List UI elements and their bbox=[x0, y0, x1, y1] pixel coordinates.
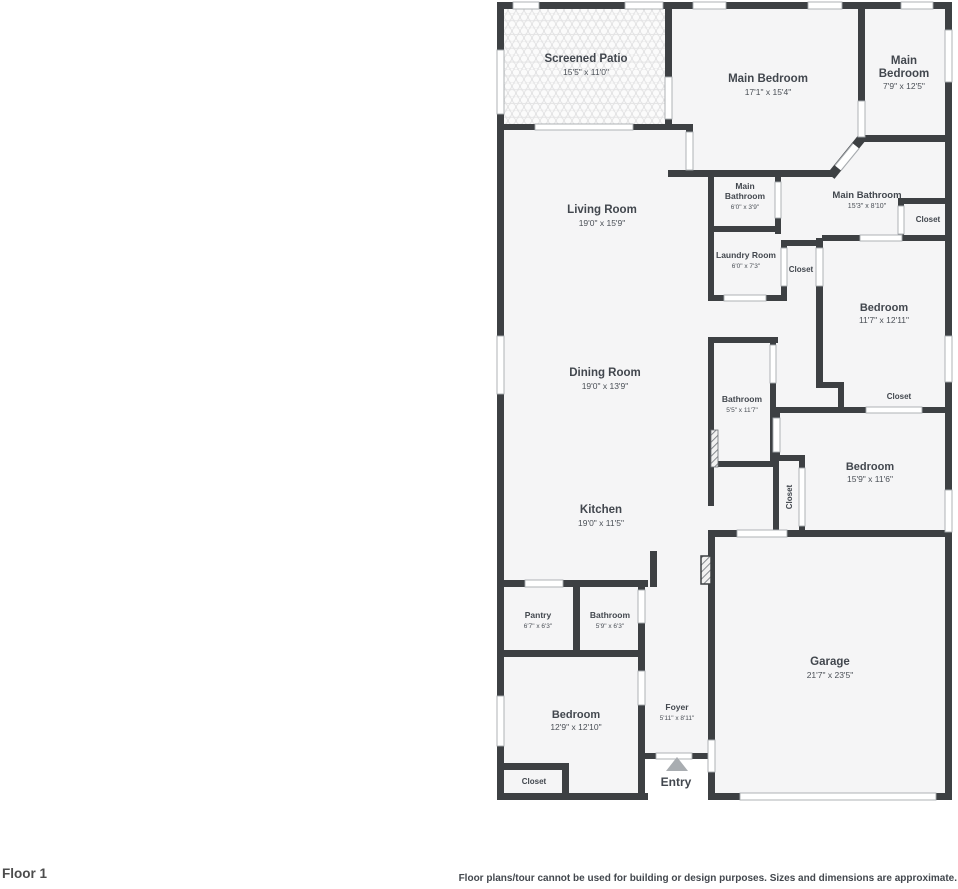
door bbox=[781, 248, 787, 286]
svg-text:Main: Main bbox=[735, 181, 754, 191]
svg-text:Bedroom: Bedroom bbox=[879, 68, 929, 80]
door bbox=[638, 671, 645, 705]
svg-text:Foyer: Foyer bbox=[665, 702, 689, 712]
window bbox=[945, 490, 952, 532]
room-label-closet-bedroom-sw: Closet bbox=[522, 777, 547, 786]
window bbox=[901, 2, 933, 9]
entry-door bbox=[656, 753, 692, 759]
room-label-closet-bedroom-e: Closet bbox=[785, 484, 794, 509]
window bbox=[513, 2, 539, 9]
room-label-bedroom-e: Bedroom 15'9" x 11'6" bbox=[846, 461, 895, 484]
svg-text:Closet: Closet bbox=[789, 265, 814, 274]
door bbox=[866, 407, 922, 413]
window bbox=[945, 30, 952, 82]
door bbox=[686, 132, 693, 170]
bathroom-fixture-hatch bbox=[711, 430, 718, 467]
window bbox=[945, 336, 952, 382]
door bbox=[770, 345, 776, 383]
window bbox=[497, 336, 504, 394]
door bbox=[525, 580, 563, 587]
svg-text:Living Room: Living Room bbox=[567, 204, 637, 216]
door bbox=[775, 182, 781, 218]
svg-text:Main Bathroom: Main Bathroom bbox=[832, 190, 901, 201]
svg-text:21'7" x 23'5": 21'7" x 23'5" bbox=[807, 670, 854, 680]
svg-text:Closet: Closet bbox=[887, 392, 912, 401]
room-label-closet-bedroom-ne: Closet bbox=[887, 392, 912, 401]
svg-text:Closet: Closet bbox=[916, 215, 941, 224]
door bbox=[773, 418, 780, 452]
room-label-closet-main-bath: Closet bbox=[916, 215, 941, 224]
svg-text:19'0" x 13'9": 19'0" x 13'9" bbox=[582, 381, 629, 391]
door bbox=[860, 235, 902, 241]
svg-text:Dining Room: Dining Room bbox=[569, 367, 641, 379]
svg-text:Laundry Room: Laundry Room bbox=[716, 250, 776, 260]
svg-text:11'7" x 12'11": 11'7" x 12'11" bbox=[859, 315, 909, 325]
svg-text:5'11" x 8'11": 5'11" x 8'11" bbox=[660, 715, 695, 722]
svg-text:Kitchen: Kitchen bbox=[580, 504, 622, 516]
svg-text:19'0" x 15'9": 19'0" x 15'9" bbox=[579, 218, 626, 228]
door bbox=[816, 248, 823, 286]
svg-text:Bedroom: Bedroom bbox=[846, 461, 895, 473]
svg-text:Bathroom: Bathroom bbox=[725, 191, 766, 201]
disclaimer-text: Floor plans/tour cannot be used for buil… bbox=[459, 873, 957, 884]
utility-hatch bbox=[701, 556, 711, 584]
room-label-entry: Entry bbox=[661, 775, 692, 789]
patio-door bbox=[665, 77, 672, 119]
door bbox=[638, 590, 645, 623]
door bbox=[737, 530, 787, 537]
window bbox=[693, 2, 726, 9]
window bbox=[497, 50, 504, 114]
svg-text:15'3" x 8'10": 15'3" x 8'10" bbox=[848, 203, 887, 210]
svg-text:6'0" x 3'9": 6'0" x 3'9" bbox=[731, 204, 760, 211]
svg-text:7'9" x 12'5": 7'9" x 12'5" bbox=[883, 81, 925, 91]
svg-text:Entry: Entry bbox=[661, 775, 692, 789]
garage-door bbox=[740, 793, 936, 800]
door bbox=[724, 295, 766, 301]
svg-text:19'0" x 11'5": 19'0" x 11'5" bbox=[578, 518, 624, 528]
room-label-bedroom-ne: Bedroom 11'7" x 12'11" bbox=[859, 302, 909, 325]
door bbox=[858, 101, 865, 137]
svg-text:Bathroom: Bathroom bbox=[722, 394, 763, 404]
svg-text:15'5" x 11'0": 15'5" x 11'0" bbox=[563, 67, 609, 77]
svg-text:Bathroom: Bathroom bbox=[590, 610, 631, 620]
svg-text:6'0" x 7'3": 6'0" x 7'3" bbox=[732, 263, 761, 270]
svg-text:Bedroom: Bedroom bbox=[552, 709, 601, 721]
svg-text:5'5" x 11'7": 5'5" x 11'7" bbox=[726, 407, 758, 414]
svg-text:Garage: Garage bbox=[810, 656, 850, 668]
patio-screen bbox=[535, 124, 633, 130]
svg-text:Main: Main bbox=[891, 55, 917, 67]
svg-text:12'9" x 12'10": 12'9" x 12'10" bbox=[550, 722, 601, 732]
svg-text:17'1" x 15'4": 17'1" x 15'4" bbox=[745, 87, 792, 97]
svg-text:Pantry: Pantry bbox=[525, 610, 552, 620]
room-label-bedroom-sw: Bedroom 12'9" x 12'10" bbox=[550, 709, 601, 732]
svg-text:Main Bedroom: Main Bedroom bbox=[728, 73, 808, 85]
svg-text:Closet: Closet bbox=[522, 777, 547, 786]
window bbox=[497, 696, 504, 746]
room-label-closet-hall: Closet bbox=[789, 265, 814, 274]
window bbox=[625, 2, 663, 9]
door bbox=[708, 740, 715, 772]
svg-text:Bedroom: Bedroom bbox=[860, 302, 909, 314]
svg-text:6'7" x 6'3": 6'7" x 6'3" bbox=[524, 623, 553, 630]
floor-plan: Screened Patio 15'5" x 11'0" Main Bedroo… bbox=[0, 0, 958, 889]
svg-text:Closet: Closet bbox=[785, 484, 794, 509]
door bbox=[898, 206, 904, 234]
floor-label: Floor 1 bbox=[2, 866, 47, 881]
svg-text:5'9" x 6'3": 5'9" x 6'3" bbox=[596, 623, 625, 630]
window bbox=[808, 2, 842, 9]
svg-text:15'9" x 11'6": 15'9" x 11'6" bbox=[847, 474, 893, 484]
svg-text:Screened Patio: Screened Patio bbox=[544, 53, 627, 65]
door bbox=[799, 468, 805, 526]
